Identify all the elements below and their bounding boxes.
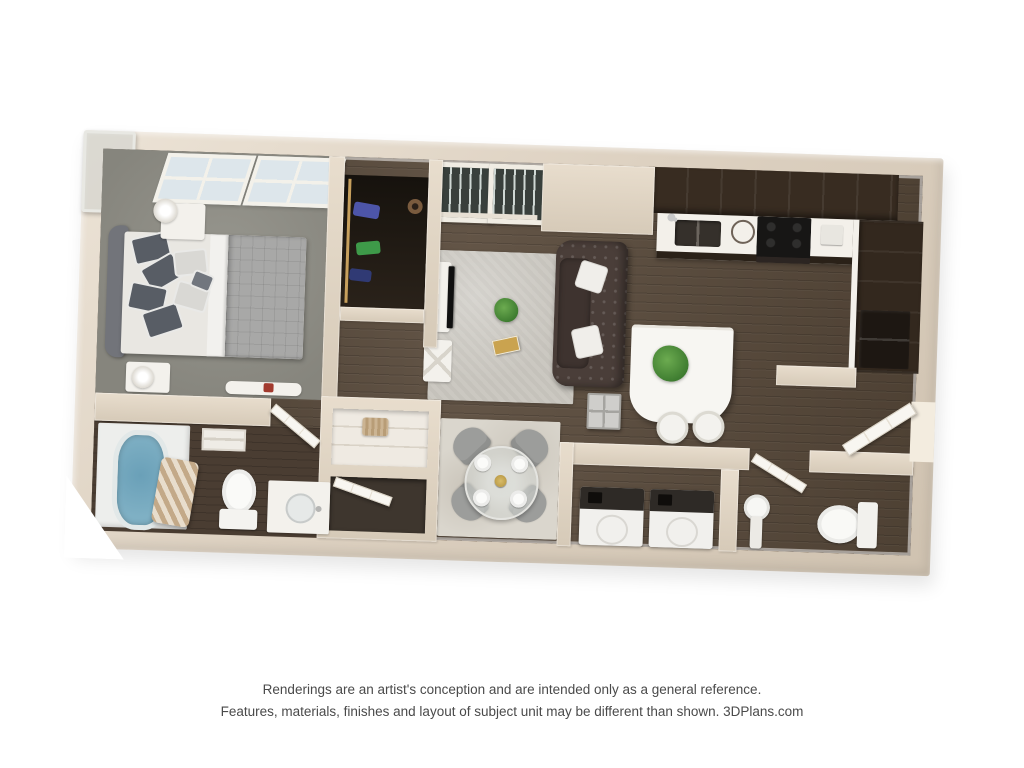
- sofa-pillow-2: [570, 324, 604, 359]
- counter-dishes: [821, 224, 844, 245]
- disclaimer-line-1: Renderings are an artist's conception an…: [0, 679, 1024, 701]
- page: { "page": { "background_color": "#ffffff…: [0, 0, 1024, 768]
- refrigerator: [859, 310, 911, 370]
- dryer-control: [658, 494, 672, 505]
- dryer-door: [666, 517, 699, 548]
- pedestal-sink-column: [749, 516, 762, 548]
- upper-cabinets: [652, 167, 899, 221]
- washer-door: [596, 514, 629, 545]
- toilet-1-tank: [219, 509, 258, 530]
- wall-laundry-top-right: [809, 450, 914, 475]
- bedroom-window-1: [152, 153, 256, 205]
- wall-kitchen-entry-stub: [776, 365, 857, 388]
- wall-entry-kitchen: [541, 163, 655, 235]
- wall-bedroom-bath: [94, 393, 271, 427]
- washer: [579, 487, 645, 547]
- toilet-2-tank: [857, 502, 879, 549]
- wall-closet-bottom: [340, 307, 424, 324]
- washer-control: [588, 492, 602, 503]
- floor-plan-rendering: [70, 130, 943, 576]
- ceiling-vent: [201, 428, 246, 451]
- wall-laundry-bath2: [718, 469, 739, 552]
- coffee-table-plant: [494, 298, 519, 323]
- kitchen-sink: [674, 220, 721, 248]
- disclaimer: Renderings are an artist's conception an…: [0, 679, 1024, 723]
- red-accent-pillow: [263, 383, 273, 392]
- walkin-closet-floor: [338, 175, 428, 310]
- linen-basket: [362, 417, 389, 436]
- hanging-clothes-green: [356, 240, 381, 255]
- bed-blanket: [225, 235, 307, 360]
- cube-side-table: [586, 393, 621, 430]
- stove: [756, 216, 811, 264]
- hanging-clothes-navy: [349, 268, 372, 283]
- dryer: [648, 489, 714, 549]
- disclaimer-line-2: Features, materials, finishes and layout…: [0, 701, 1024, 723]
